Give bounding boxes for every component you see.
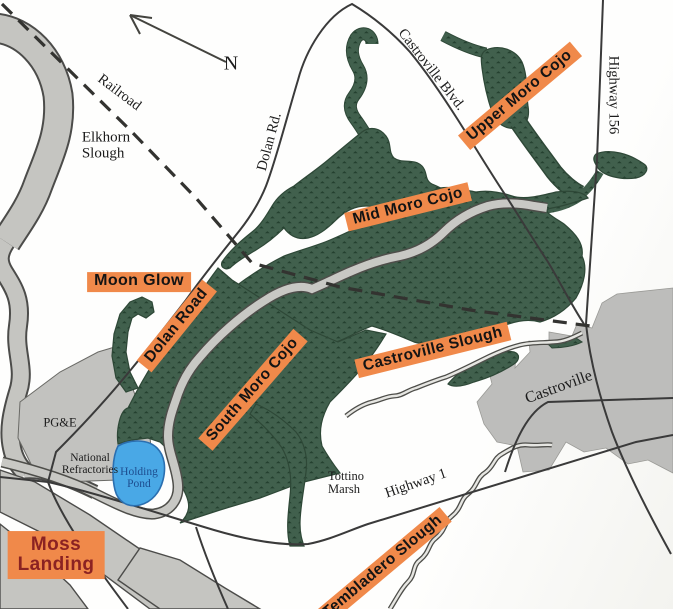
holding-pond: [113, 441, 165, 506]
slough-map: N Railroad Elkhorn Slough Dolan Rd. Cast…: [0, 0, 673, 609]
map-graphics: [0, 0, 673, 609]
north-arrow: [130, 15, 226, 62]
highway-156-road: [586, 0, 671, 554]
